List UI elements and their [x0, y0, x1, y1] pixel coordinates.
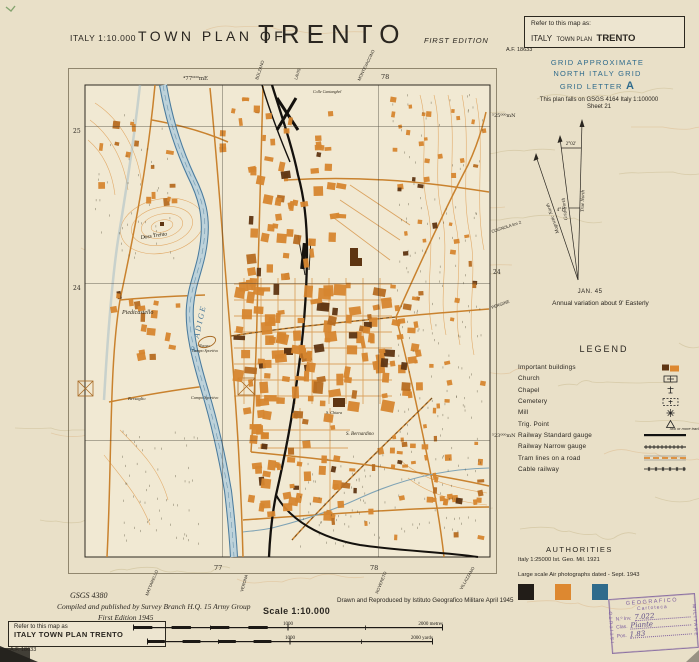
edition-label: FIRST EDITION — [424, 36, 489, 45]
falls-on-note: This plan falls on GSGS 4164 Italy 1:100… — [503, 97, 695, 110]
authorities-source-2: Large scale Air photographs dated - Sept… — [518, 572, 693, 578]
legend-item-label: Chapel — [518, 387, 642, 394]
refer-country: ITALY — [531, 34, 552, 43]
colle-label: Colle Cantanghel — [313, 89, 342, 94]
scale-title: Scale 1:10.000 — [263, 606, 330, 616]
map-sheet: ⁴77⁰⁰⁰mE 78 77 78 ⁵25⁰⁰⁰mN 24 ⁵23⁰⁰⁰mN 2… — [0, 0, 699, 662]
northing-24-left: 24 — [73, 285, 81, 292]
authorities-title: AUTHORITIES — [546, 545, 693, 554]
imprint-compiled: Compiled and published by Survey Branch … — [57, 602, 251, 611]
chapel-symbol — [642, 385, 690, 395]
road-verona: VERONA — [239, 574, 249, 593]
railway-narrow-symbol — [642, 442, 690, 452]
legend-item-label: Mill — [518, 409, 642, 416]
legend-item-label: Cemetery — [518, 398, 642, 405]
gsgs-number: GSGS 4380 — [70, 591, 108, 600]
cemetery-symbol — [642, 397, 690, 407]
piedicastello-label: Piedicastello — [121, 310, 153, 316]
legend-item: Railway Standard gaugeTwo or more tracks — [518, 430, 690, 441]
grid-note-line1: GRID APPROXIMATE — [515, 58, 680, 67]
refer-name: TRENTO — [597, 33, 636, 44]
road-montevaccino: MONTEVACCINO — [356, 48, 376, 81]
doss-trento-monument — [160, 222, 164, 226]
swatch-blue — [592, 584, 608, 600]
swatch-orange — [555, 584, 571, 600]
refer-series: TOWN PLAN — [557, 37, 593, 43]
tram-lines-symbol — [642, 453, 690, 463]
authorities-source-1: Italy 1:25000 Ist. Geo. Mil. 1921 — [518, 557, 693, 563]
easting-label: ⁴77⁰⁰⁰mE — [183, 75, 208, 82]
af-number-bottom: A.F. 18633 — [10, 647, 36, 653]
legend-item-label: Railway Standard gauge — [518, 432, 642, 439]
s-bernardino-label: S. Bernardino — [346, 432, 374, 437]
angle-grid-true: 2°02' — [566, 142, 576, 147]
legend-item-label: Cable railway — [518, 466, 642, 473]
legend: LEGEND Important buildingsChurchChapelCe… — [518, 344, 690, 475]
bersaglio-label: Bersaglio — [128, 396, 146, 401]
stamp-clas-label: Clas. — [616, 624, 628, 631]
legend-item: Trig. Point — [518, 418, 690, 429]
legend-item: Chapel — [518, 385, 690, 396]
legend-item: Important buildings — [518, 362, 690, 373]
easting-78-bottom: 78 — [370, 564, 378, 572]
true-north-label: True North — [581, 189, 587, 212]
legend-item-label: Important buildings — [518, 364, 642, 371]
archive-stamp: ISTITUTO MILITARE GEOGRAFICO Cartoteca N… — [608, 593, 699, 654]
legend-item-label: Tram lines on a road — [518, 455, 642, 462]
legend-item-label: Trig. Point — [518, 421, 642, 428]
legend-item: Mill — [518, 407, 690, 418]
legend-item: Church — [518, 373, 690, 384]
series-label: ITALY 1:10.000 — [70, 33, 136, 43]
falls-on-line2: Sheet 21 — [503, 104, 695, 110]
yards-end-label: 2000 yards — [411, 636, 433, 641]
s-chiara-label: S. Chiara — [326, 410, 342, 415]
important-buildings-symbol — [642, 363, 690, 373]
northing-24-right: 24 — [493, 269, 501, 276]
metres-end-label: 2000 metres — [418, 622, 443, 627]
legend-item: Tram lines on a road — [518, 452, 690, 463]
campo-sportivo-label: Campo Sportivo — [191, 395, 218, 400]
grid-letter: A — [626, 80, 635, 92]
declination-diagram: 2°02' 4°11' Magnetic North Grid North Tr… — [508, 112, 683, 290]
declination-note: Annual variation about 9' Easterly — [508, 300, 693, 307]
declination-date: JAN. 45 — [560, 289, 620, 295]
hospital-s-chiara — [333, 398, 345, 407]
scale-bars: 1000 2000 metres 1000 2000 yards — [128, 618, 463, 654]
railway-standard-symbol — [642, 430, 690, 440]
northing-low-label: ⁵23⁰⁰⁰mN — [492, 433, 516, 439]
refer-intro: Refer to this map as: — [531, 20, 678, 27]
refer-box-top: Refer to this map as: ITALY TOWN PLAN TR… — [524, 16, 685, 48]
page-title: TRENTO — [258, 19, 406, 50]
road-bolzano: BOLZANO — [254, 59, 265, 80]
legend-railway-note: Two or more tracks — [669, 426, 699, 431]
af-number-top: A.F. 18633 — [506, 47, 532, 53]
church-symbol — [642, 374, 690, 384]
stamp-pos-label: Pos. — [617, 632, 627, 639]
cable-railway-symbol — [642, 464, 690, 474]
legend-item: Cemetery — [518, 396, 690, 407]
nuovo-campo-label-2: Campo Sportivo — [192, 348, 218, 353]
grid-note-line2: NORTH ITALY GRID — [515, 69, 680, 78]
mill-symbol — [642, 408, 690, 418]
easting-77-bottom: 77 — [214, 564, 222, 572]
magnetic-north-label: Magnetic North — [546, 202, 562, 235]
easting-78-top: 78 — [381, 73, 389, 81]
legend-item: Cable railway — [518, 464, 690, 475]
imprint-drawn: Drawn and Reproduced by Istituto Geograf… — [337, 597, 513, 604]
legend-item-label: Church — [518, 375, 642, 382]
road-mattarello: MATTARELLO — [144, 569, 159, 597]
legend-title: LEGEND — [518, 344, 690, 354]
grid-note-line3: GRID LETTER A — [515, 80, 680, 92]
road-villazzano: VILLAZZANO — [459, 565, 477, 590]
northing-25-left: 25 — [73, 128, 81, 135]
legend-item-label: Railway Narrow gauge — [518, 443, 642, 450]
swatch-black — [518, 584, 534, 600]
grid-note: GRID APPROXIMATE NORTH ITALY GRID GRID L… — [515, 58, 680, 92]
authorities: AUTHORITIES Italy 1:25000 Ist. Geo. Mil.… — [518, 545, 693, 600]
falls-on-line1: This plan falls on GSGS 4164 Italy 1:100… — [503, 97, 695, 103]
road-lavis: LAVIS — [293, 68, 301, 81]
legend-item: Railway Narrow gauge — [518, 441, 690, 452]
